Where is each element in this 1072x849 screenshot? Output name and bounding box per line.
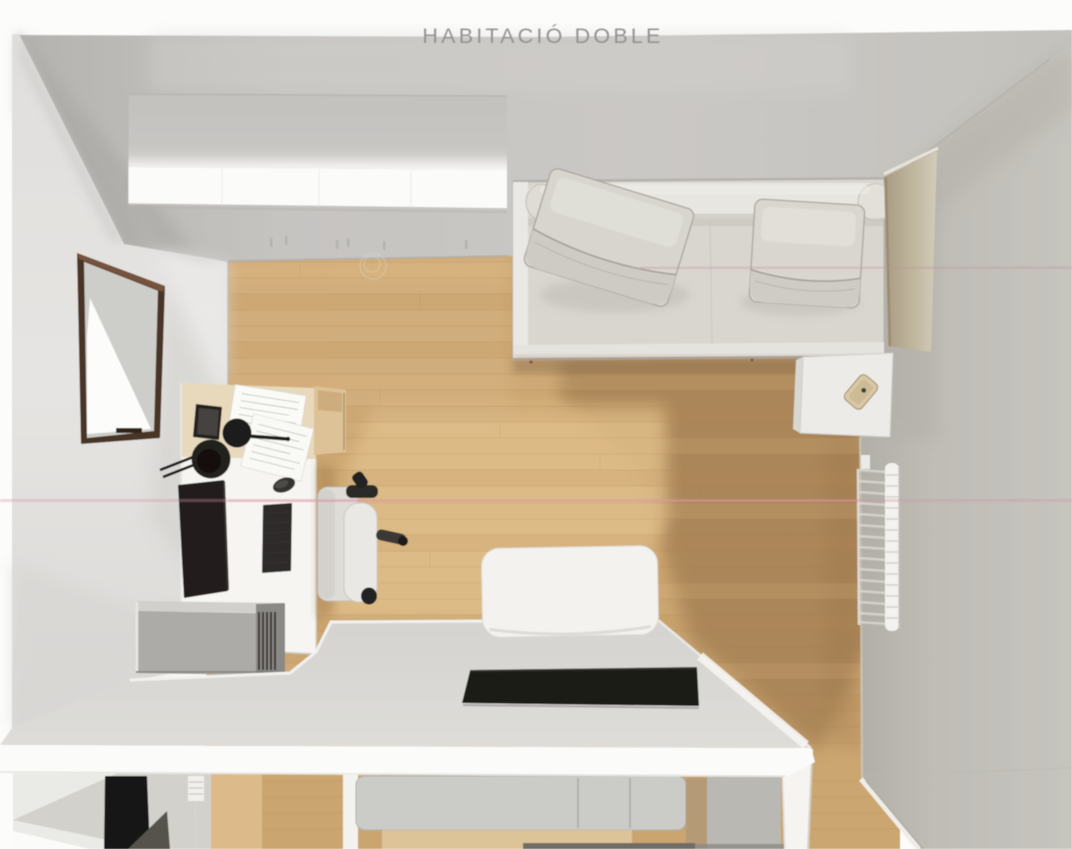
svg-text:HABITACIÓ DOBLE: HABITACIÓ DOBLE (422, 23, 663, 48)
